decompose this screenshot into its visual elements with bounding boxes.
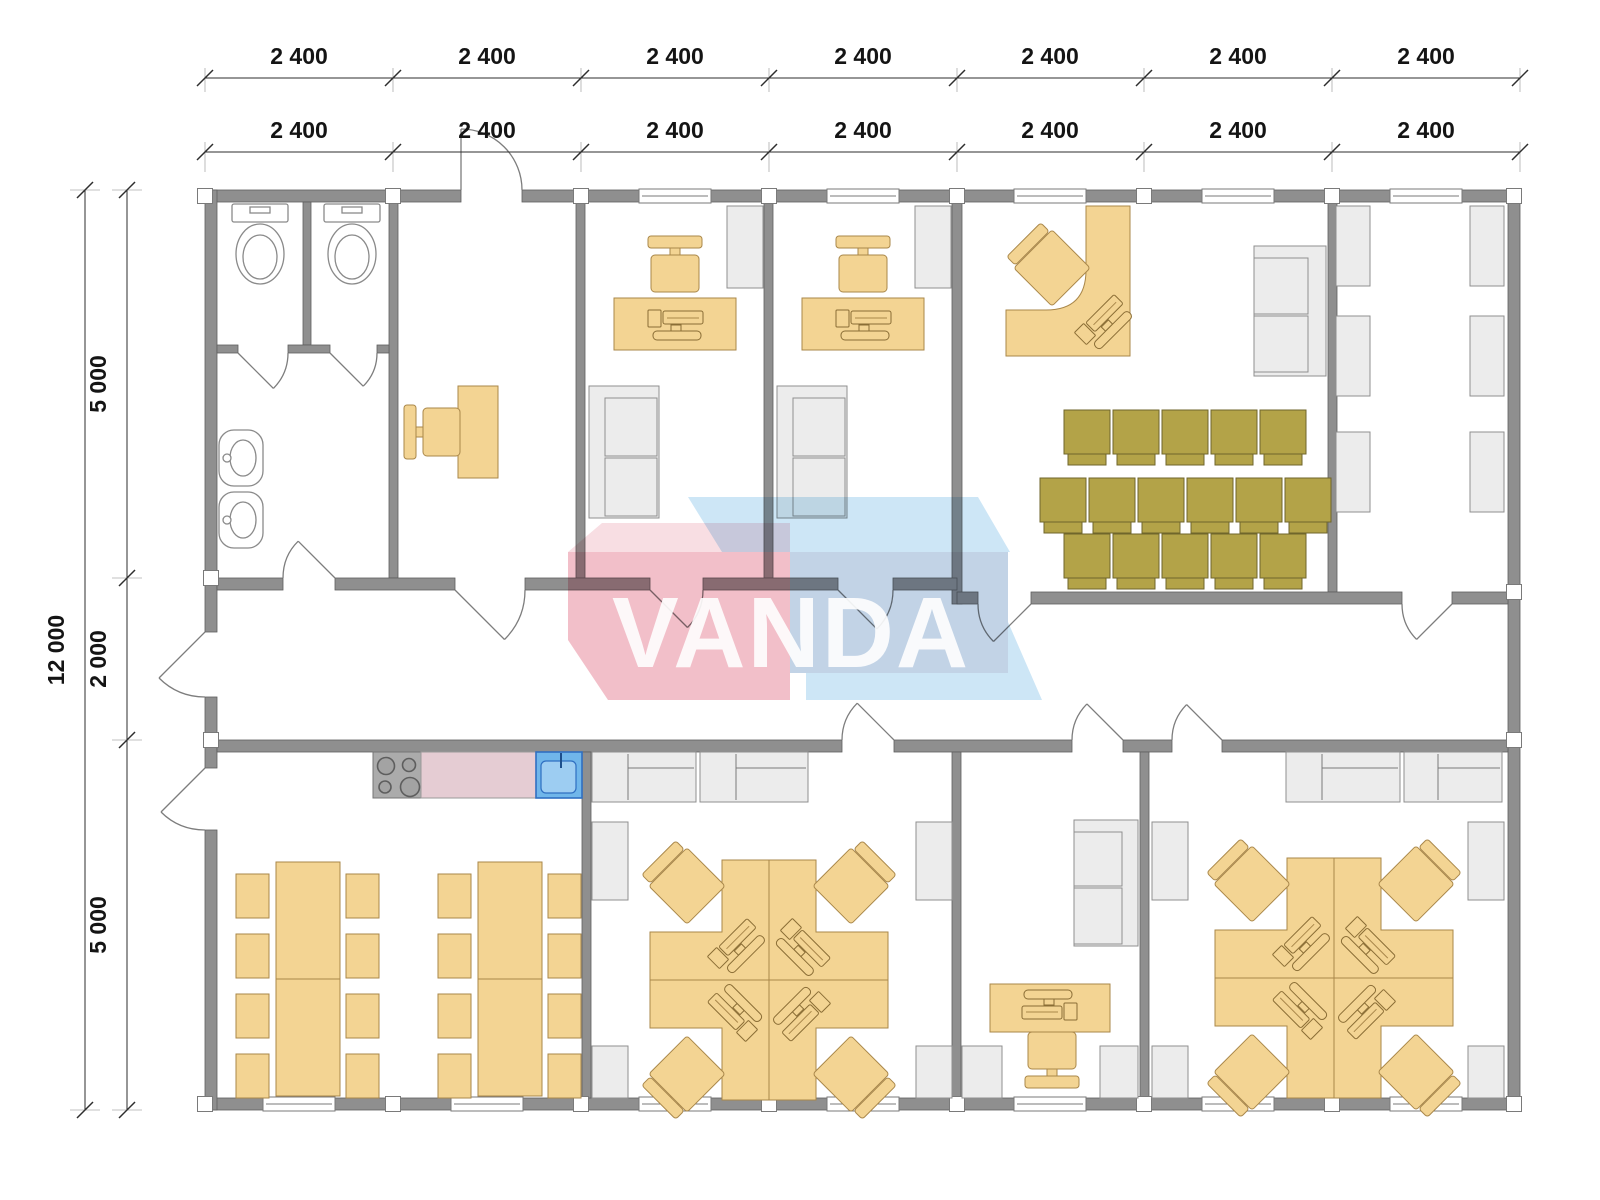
stove-icon bbox=[373, 752, 421, 798]
dimension-label: 2 400 bbox=[1397, 117, 1455, 143]
cabinet bbox=[592, 752, 808, 802]
sofa bbox=[1074, 820, 1138, 946]
dining-table bbox=[478, 862, 542, 1096]
office-chair-icon bbox=[648, 236, 702, 292]
dimension-label: 2 400 bbox=[1021, 43, 1079, 69]
dining-table bbox=[276, 862, 340, 1096]
dimension-label: 5 000 bbox=[85, 355, 111, 413]
dimension-label: 5 000 bbox=[85, 896, 111, 954]
washbasin-icon bbox=[219, 430, 263, 486]
cabinet bbox=[1152, 822, 1188, 900]
toilet-icon bbox=[324, 204, 380, 284]
cabinet bbox=[962, 1046, 1002, 1098]
kitchen-counter bbox=[421, 752, 536, 798]
cabinet bbox=[592, 1046, 628, 1098]
cabinet bbox=[1336, 316, 1370, 396]
office-chair-icon bbox=[836, 236, 890, 292]
sofa bbox=[1254, 246, 1326, 376]
dimension-label: 2 400 bbox=[1209, 43, 1267, 69]
window bbox=[1014, 189, 1086, 203]
door-swing bbox=[159, 632, 205, 697]
dimension-label: 2 000 bbox=[85, 630, 111, 688]
cabinet bbox=[592, 822, 628, 900]
cabinet bbox=[727, 206, 763, 288]
cabinet bbox=[915, 206, 951, 288]
dimension-label: 2 400 bbox=[270, 117, 328, 143]
dimension-label: 2 400 bbox=[834, 43, 892, 69]
dimension-label: 2 400 bbox=[458, 43, 516, 69]
cabinet bbox=[1468, 822, 1504, 900]
cabinet bbox=[1286, 752, 1502, 802]
window bbox=[263, 1097, 335, 1111]
dimension-label: 2 400 bbox=[270, 43, 328, 69]
kitchen-sink-icon bbox=[536, 752, 582, 798]
dimension-label: 2 400 bbox=[1397, 43, 1455, 69]
cabinet bbox=[1336, 206, 1370, 286]
floor-plan-page: VANDA 2 400 2 400 2 400 2 400 2 400 2 40… bbox=[0, 0, 1600, 1200]
vanda-logo-watermark: VANDA bbox=[568, 497, 1042, 700]
cabinet bbox=[1468, 1046, 1504, 1098]
logo-box-pink-top bbox=[568, 523, 790, 552]
toilet-icon bbox=[232, 204, 288, 284]
door-swing bbox=[161, 768, 205, 830]
window bbox=[1014, 1097, 1086, 1111]
window bbox=[451, 1097, 523, 1111]
cabinet bbox=[1336, 432, 1370, 512]
window bbox=[1202, 189, 1274, 203]
cabinet bbox=[1470, 316, 1504, 396]
cabinet bbox=[1152, 1046, 1188, 1098]
training-chair-row bbox=[1064, 410, 1306, 465]
window bbox=[827, 189, 899, 203]
desk bbox=[458, 386, 498, 478]
dimension-label: 2 400 bbox=[646, 43, 704, 69]
cabinet bbox=[1470, 206, 1504, 286]
brand-wordmark: VANDA bbox=[612, 577, 970, 689]
dimension-label: 2 400 bbox=[1021, 117, 1079, 143]
window bbox=[1390, 189, 1462, 203]
cabinet bbox=[916, 1046, 952, 1098]
sofa bbox=[589, 386, 659, 518]
floor-plan-drawing: VANDA 2 400 2 400 2 400 2 400 2 400 2 40… bbox=[0, 0, 1600, 1200]
dimension-label: 2 400 bbox=[646, 117, 704, 143]
office-chair-icon bbox=[404, 405, 460, 459]
cabinet bbox=[1470, 432, 1504, 512]
dimension-label: 2 400 bbox=[458, 117, 516, 143]
washbasin-icon bbox=[219, 492, 263, 548]
corridor bbox=[159, 632, 205, 697]
dimension-label: 2 400 bbox=[834, 117, 892, 143]
window bbox=[639, 189, 711, 203]
office-chair-icon bbox=[1025, 1032, 1079, 1088]
cabinet bbox=[916, 822, 952, 900]
cabinet bbox=[1100, 1046, 1138, 1098]
dimension-label: 12 000 bbox=[43, 615, 69, 685]
training-chair-row bbox=[1064, 534, 1306, 589]
dimension-label: 2 400 bbox=[1209, 117, 1267, 143]
